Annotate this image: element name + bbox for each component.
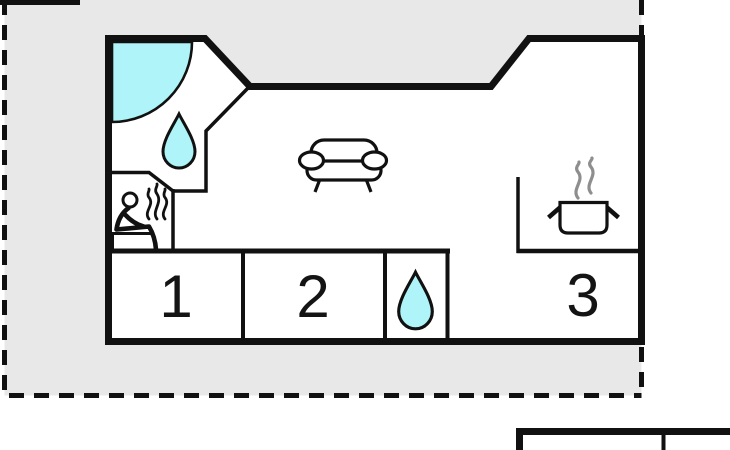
sofa-armrest-right xyxy=(363,152,387,169)
room-2-label: 2 xyxy=(296,263,329,330)
floor-plan: 1 2 3 xyxy=(0,0,730,450)
outbuilding-floor xyxy=(523,435,730,450)
outbuilding xyxy=(520,432,730,450)
neighbor-wall-stub xyxy=(0,0,80,5)
room-3-label: 3 xyxy=(566,262,599,329)
sofa-armrest-left xyxy=(300,152,324,169)
room-1-label: 1 xyxy=(159,263,192,330)
pot-body xyxy=(560,203,607,234)
